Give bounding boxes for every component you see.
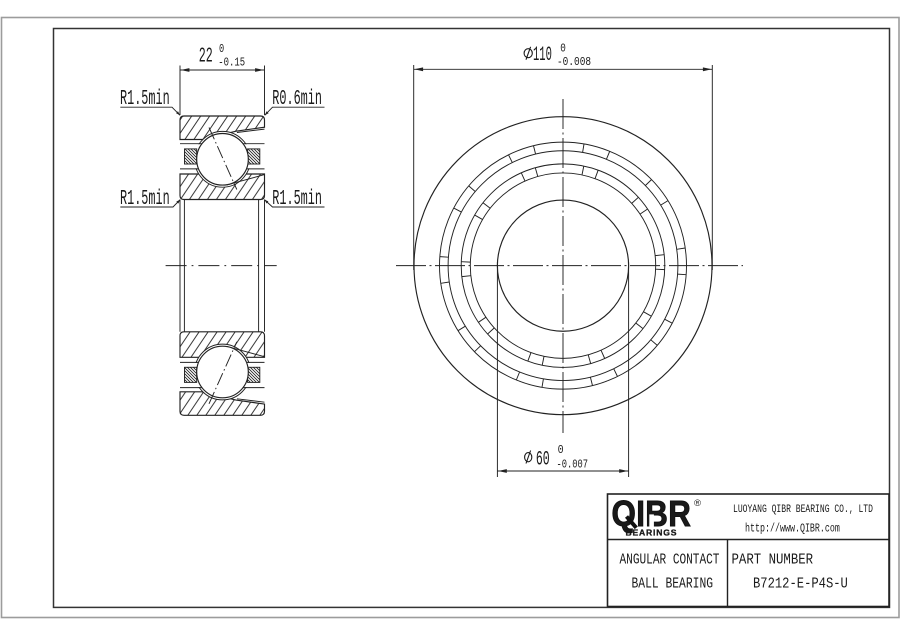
svg-text:PART NUMBER: PART NUMBER bbox=[732, 553, 814, 569]
svg-text:R1.5min: R1.5min bbox=[272, 188, 322, 211]
svg-text:-0.007: -0.007 bbox=[557, 458, 589, 472]
svg-text:60: 60 bbox=[536, 447, 550, 470]
svg-text:http://www.QIBR.com: http://www.QIBR.com bbox=[745, 522, 840, 536]
svg-text:R0.6min: R0.6min bbox=[272, 88, 322, 111]
svg-text:BALL BEARING: BALL BEARING bbox=[632, 575, 714, 592]
svg-text:ANGULAR CONTACT: ANGULAR CONTACT bbox=[620, 551, 720, 568]
svg-text:BEARINGS: BEARINGS bbox=[626, 528, 678, 538]
svg-text:R1.5min: R1.5min bbox=[120, 88, 170, 111]
svg-text:-0.008: -0.008 bbox=[557, 56, 591, 69]
svg-text:B7212-E-P4S-U: B7212-E-P4S-U bbox=[753, 577, 848, 593]
svg-text:0: 0 bbox=[219, 43, 224, 57]
svg-text:R1.5min: R1.5min bbox=[120, 188, 170, 211]
svg-text:0: 0 bbox=[558, 444, 564, 457]
svg-text:22: 22 bbox=[199, 45, 213, 69]
svg-text:®: ® bbox=[694, 498, 701, 509]
svg-text:LUOYANG QIBR BEARING CO., LTD: LUOYANG QIBR BEARING CO., LTD bbox=[733, 503, 873, 515]
svg-text:0: 0 bbox=[560, 43, 566, 57]
svg-text:-0.15: -0.15 bbox=[218, 57, 245, 71]
svg-text:110: 110 bbox=[533, 44, 552, 67]
